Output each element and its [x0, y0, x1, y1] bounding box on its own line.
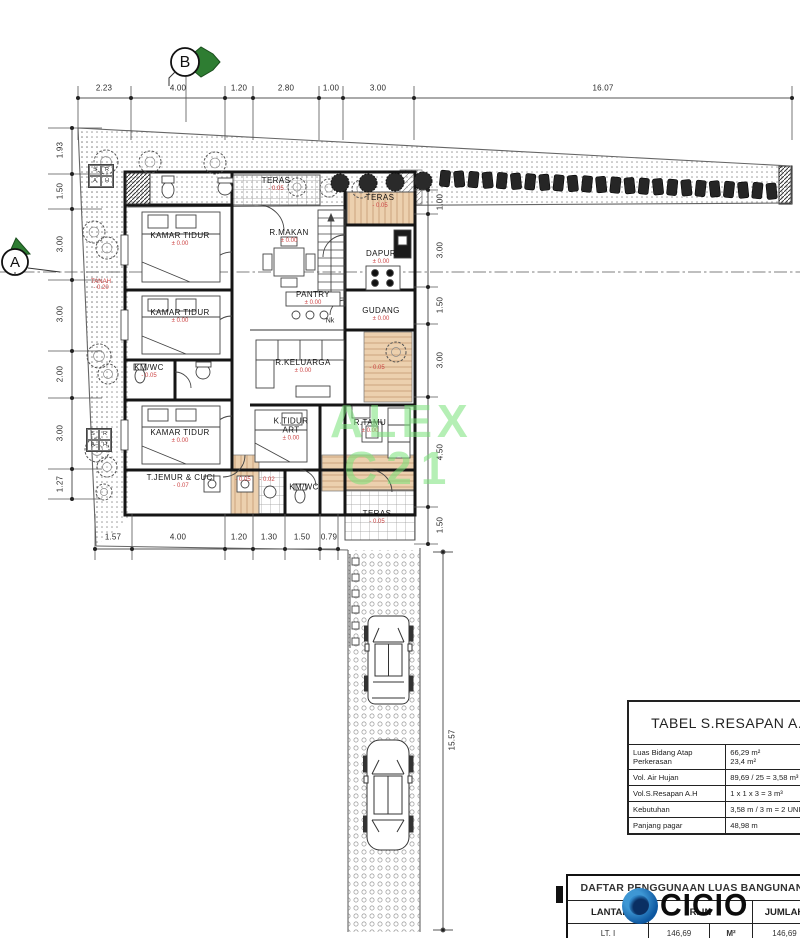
dim-top-3: 2.80: [278, 84, 294, 93]
grid-marker-a: A: [2, 238, 60, 275]
dim-top-0: 2.23: [96, 84, 112, 93]
room-label-10-kamar-tidur: KAMAR TIDUR± 0.00: [150, 428, 209, 444]
dim-top-1: 4.00: [170, 84, 186, 93]
watermark-brand: CICIO: [622, 888, 748, 924]
room-label-11-k-tidur-art: K.TIDUR ART± 0.00: [267, 417, 315, 442]
dim-left-4: 2.00: [56, 366, 65, 382]
room-name: R.KELUARGA: [275, 358, 331, 367]
room-label-2-teras: TERAS- 0.05: [366, 193, 395, 209]
room-level: - 0.05: [363, 519, 392, 525]
dim-right-3: 3.00: [436, 352, 445, 368]
room-label-6-kamar-tidur: KAMAR TIDUR± 0.00: [150, 308, 209, 324]
brand-logo-icon: [622, 888, 658, 924]
room-level: ± 0.00: [150, 318, 209, 324]
resapan-table: TABEL S.RESAPAN A.H Luas Bidang AtapPerk…: [627, 700, 800, 835]
room-level: ± 0.00: [362, 316, 400, 322]
usage-row-floor: LT. I: [567, 924, 649, 938]
room-label-3-dapur: DAPUR± 0.00: [366, 249, 396, 265]
room-label-7-gudang: GUDANG± 0.00: [362, 306, 400, 322]
room-label-5-pantry: PANTRY± 0.00: [296, 290, 330, 306]
resapan-table-title: TABEL S.RESAPAN A.H: [628, 701, 800, 745]
room-name: T.JEMUR & CUCI: [147, 473, 216, 482]
room-level: ± 0.00: [267, 436, 315, 442]
dim-right-5: 1.50: [436, 517, 445, 533]
room-name: KAMAR TIDUR: [150, 231, 209, 240]
room-name: TERAS: [262, 176, 291, 185]
dim-top-2: 1.20: [231, 84, 247, 93]
svg-text:B: B: [180, 54, 191, 71]
laundry-level-2: - 0.02: [259, 477, 274, 483]
usage-row-total: 146,69: [753, 924, 800, 938]
room-name: KAMAR TIDUR: [150, 308, 209, 317]
room-level: - 0.05: [262, 186, 291, 192]
dim-left-1: 1.50: [56, 183, 65, 199]
dim-bottom-4: 1.50: [294, 533, 310, 542]
resapan-well-marker-top: SRAH: [88, 164, 114, 188]
room-label-9-r-keluarga: R.KELUARGA± 0.00: [275, 358, 331, 374]
usage-col-total: JUMLAH: [753, 901, 800, 924]
room-name: TERAS: [363, 509, 392, 518]
room-label-14-km-wc: KM/WC: [289, 483, 319, 492]
dim-left-0: 1.93: [56, 142, 65, 158]
room-name: KM/WC: [289, 483, 319, 492]
grid-marker-b: B: [169, 47, 220, 86]
watermark-green: ALEX C21: [330, 398, 473, 492]
usage-row-unit: M²: [710, 924, 753, 938]
resapan-row-3: Kebutuhan3,58 m / 3 m = 2 UNIT: [628, 802, 800, 818]
room-level: ± 0.00: [150, 438, 209, 444]
resapan-row-4: Panjang pagar48,98 m: [628, 818, 800, 835]
dim-bottom-3: 1.30: [261, 533, 277, 542]
dim-top-6: 16.07: [592, 84, 613, 93]
room-label-4-kamar-tidur: KAMAR TIDUR± 0.00: [150, 231, 209, 247]
dim-bottom-2: 1.20: [231, 533, 247, 542]
usage-row-area: 146,69: [649, 924, 710, 938]
dim-bottom-0: 1.57: [105, 533, 121, 542]
resapan-row-1: Vol. Air Hujan89,69 / 25 = 3,58 m³: [628, 770, 800, 786]
room-label-13-t-jemur-cuci: T.JEMUR & CUCI- 0.07: [147, 473, 216, 489]
room-name: R.MAKAN: [269, 228, 308, 237]
dim-left-5: 3.00: [56, 425, 65, 441]
dim-right-1: 3.00: [436, 242, 445, 258]
dim-right-0: 1.00: [436, 194, 445, 210]
room-level: - 0.05: [134, 373, 164, 379]
room-level: - 0.05: [366, 203, 395, 209]
floor-plan-page: B A TANAH- 0.20 - 0.05 - 0.05 - 0.02 Nk …: [0, 0, 800, 938]
room-level: ± 0.00: [269, 238, 308, 244]
svg-text:A: A: [10, 254, 20, 271]
room-level: ± 0.00: [275, 368, 331, 374]
dim-top-4: 1.00: [323, 84, 339, 93]
dim-left-6: 1.27: [56, 476, 65, 492]
car-top-view-2: [364, 740, 414, 850]
resapan-row-0: Luas Bidang AtapPerkerasan66,29 m²23,4 m…: [628, 745, 800, 770]
scan-artifact: [556, 886, 563, 903]
dim-top-5: 3.00: [370, 84, 386, 93]
room-name: DAPUR: [366, 249, 396, 258]
dim-right-2: 1.50: [436, 297, 445, 313]
room-level: - 0.07: [147, 483, 216, 489]
resapan-row-2: Vol.S.Resapan A.H1 x 1 x 3 = 3 m³: [628, 786, 800, 802]
room-name: PANTRY: [296, 290, 330, 299]
room-label-15-teras: TERAS- 0.05: [363, 509, 392, 525]
room-level: ± 0.00: [366, 259, 396, 265]
car-top-view-1: [365, 616, 414, 704]
driveway-dim-label: 15.57: [448, 729, 457, 750]
room-name: TERAS: [366, 193, 395, 202]
resapan-well-marker-bottom: SRAH: [86, 428, 112, 452]
dim-left-2: 3.00: [56, 236, 65, 252]
room-name: KAMAR TIDUR: [150, 428, 209, 437]
room-name: GUDANG: [362, 306, 400, 315]
room-level: ± 0.00: [296, 300, 330, 306]
dim-left-3: 3.00: [56, 306, 65, 322]
room-name: K.TIDUR ART: [267, 417, 315, 435]
room-level: ± 0.00: [150, 241, 209, 247]
room-name: KM/WC: [134, 363, 164, 372]
room-label-8-km-wc: KM/WC- 0.05: [134, 363, 164, 379]
stair-direction-label: Nk: [326, 318, 335, 325]
tanah-level-label: TANAH- 0.20: [91, 279, 111, 291]
dim-bottom-1: 4.00: [170, 533, 186, 542]
room-label-1-r-makan: R.MAKAN± 0.00: [269, 228, 308, 244]
room-label-0-teras: TERAS- 0.05: [262, 176, 291, 192]
laundry-level-1: - 0.05: [235, 477, 250, 483]
corridor-level-label: - 0.05: [369, 365, 384, 371]
dim-bottom-5: 0.79: [321, 533, 337, 542]
